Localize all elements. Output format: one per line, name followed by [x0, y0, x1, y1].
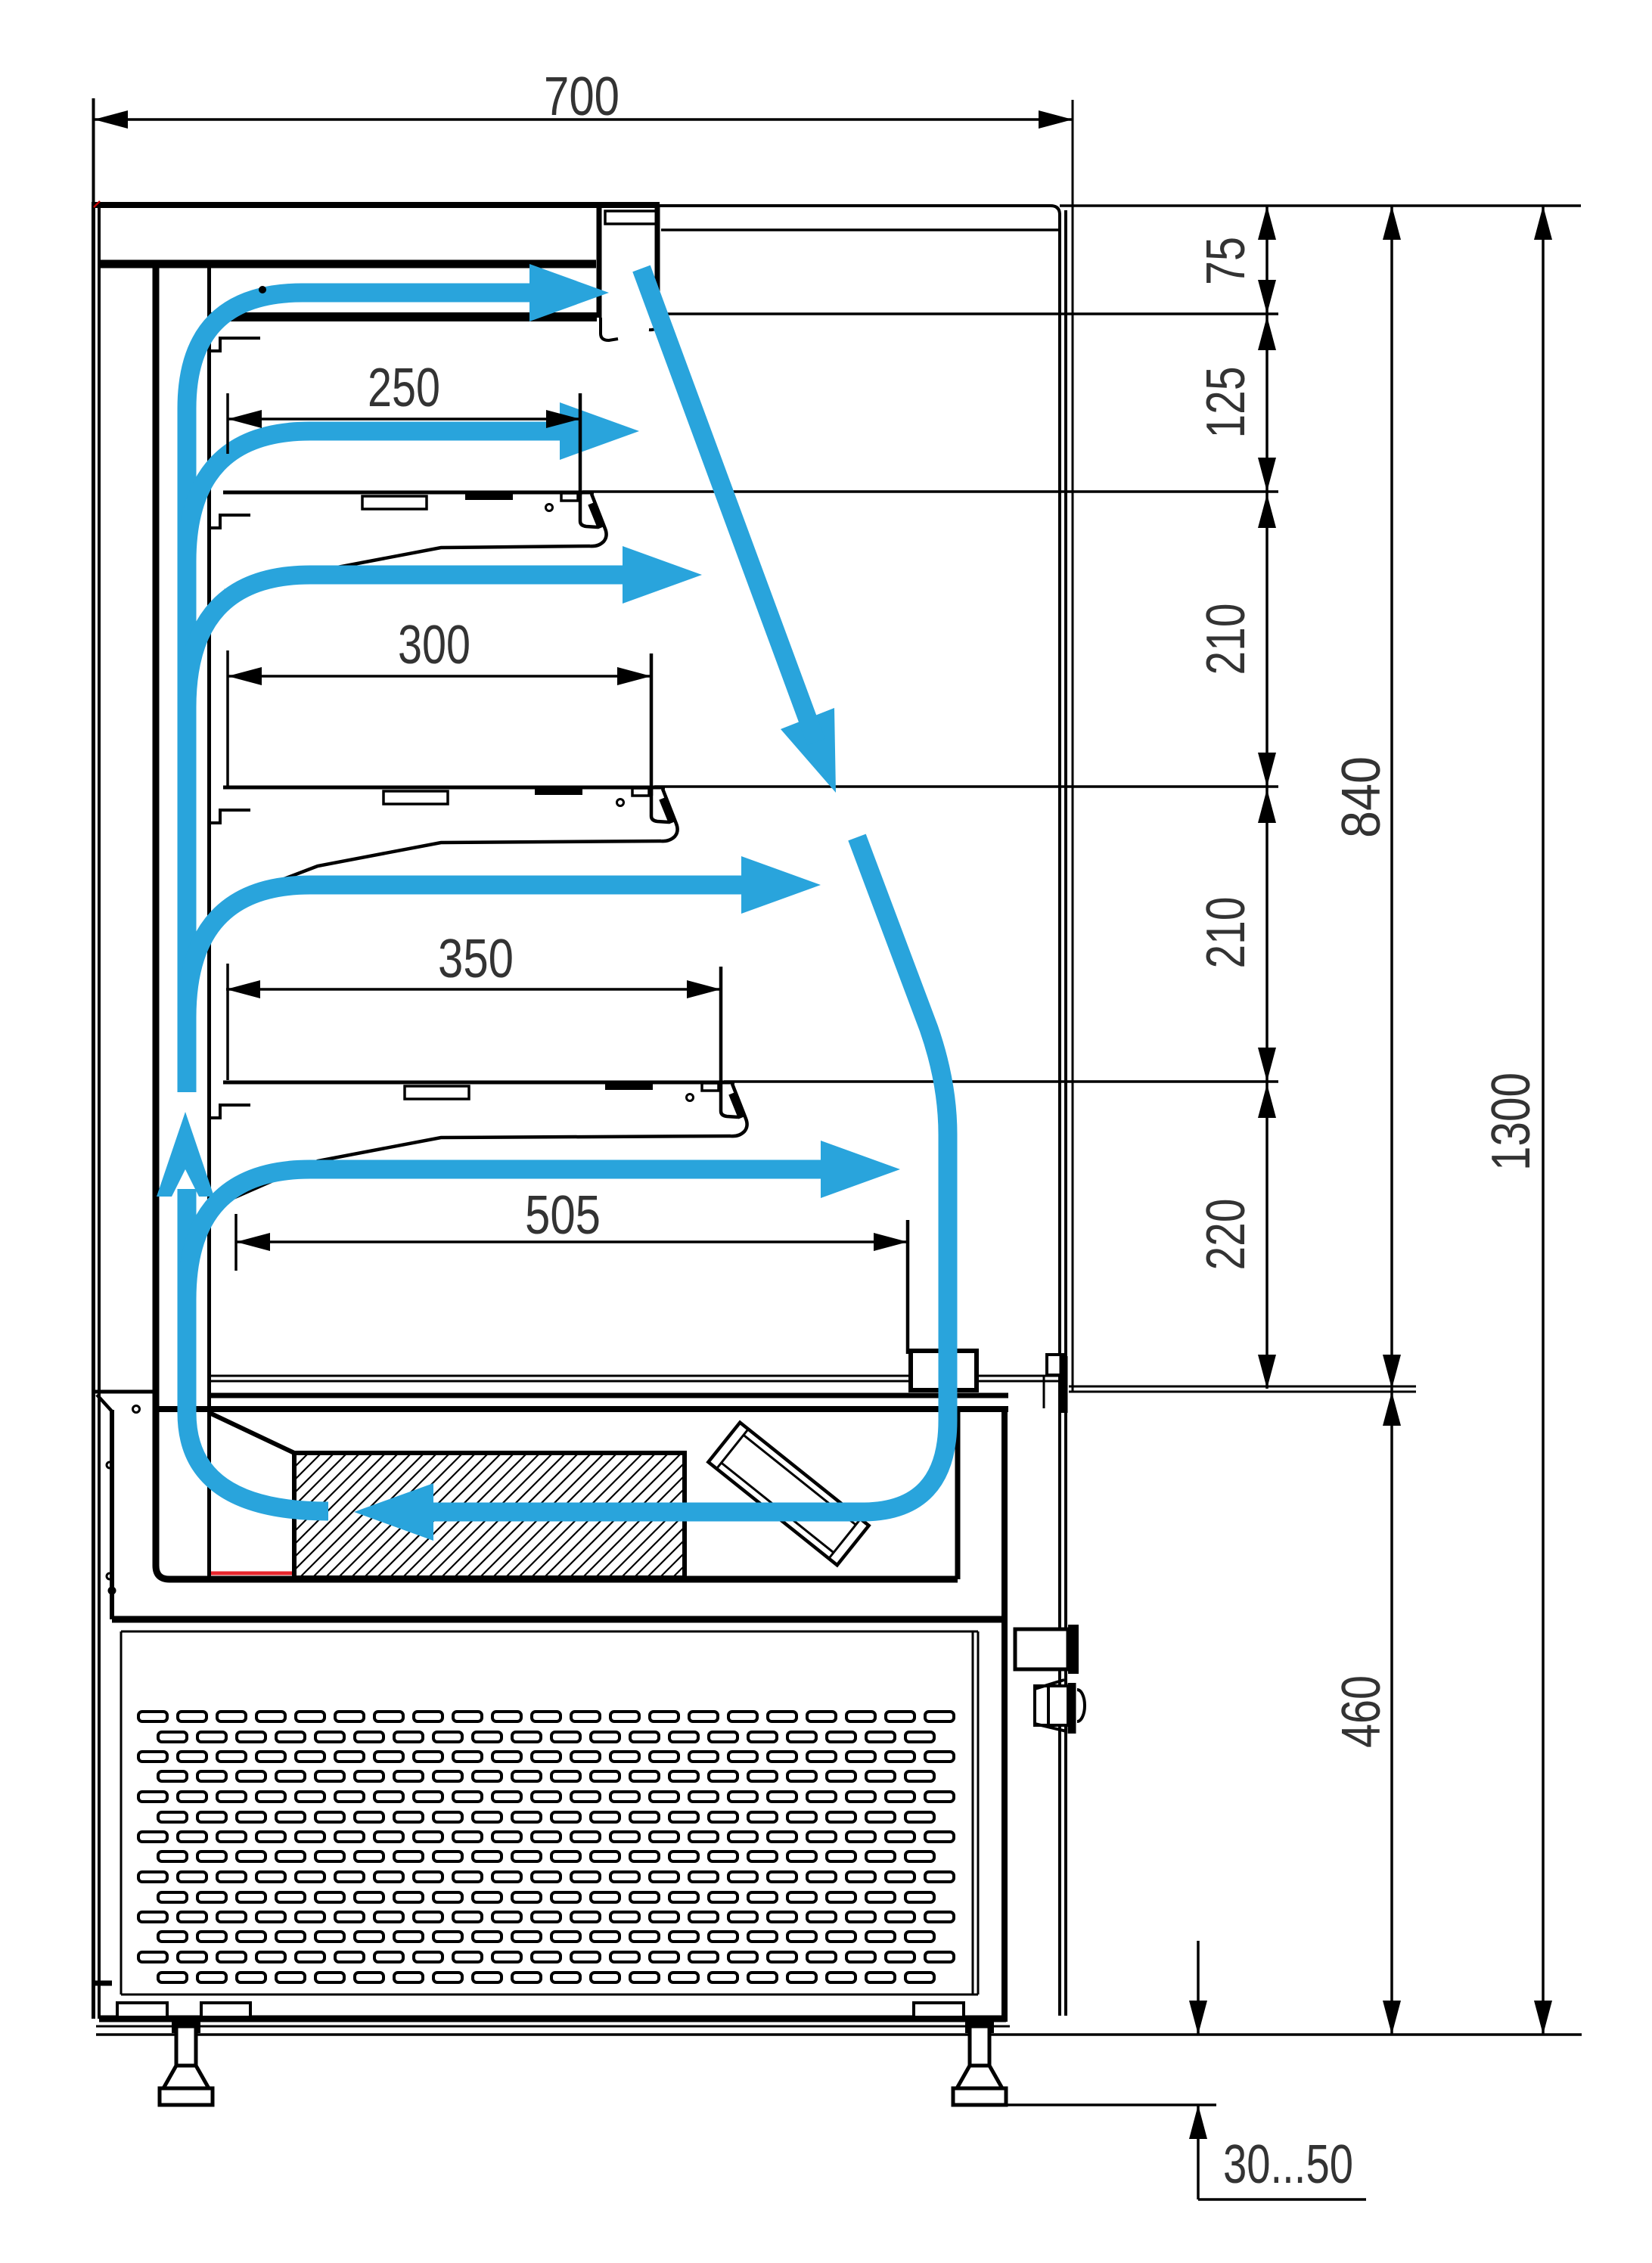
svg-text:700: 700: [544, 67, 619, 127]
svg-text:220: 220: [1196, 1199, 1256, 1271]
svg-text:75: 75: [1196, 237, 1256, 285]
svg-text:30...50: 30...50: [1223, 2134, 1353, 2195]
svg-text:300: 300: [398, 615, 470, 675]
svg-text:250: 250: [368, 358, 440, 418]
svg-text:1300: 1300: [1481, 1073, 1542, 1171]
svg-text:210: 210: [1196, 897, 1256, 969]
svg-text:350: 350: [438, 929, 514, 989]
svg-text:840: 840: [1331, 756, 1392, 838]
svg-text:210: 210: [1196, 604, 1256, 675]
svg-text:125: 125: [1196, 367, 1256, 439]
svg-text:460: 460: [1331, 1675, 1392, 1748]
svg-text:505: 505: [525, 1185, 601, 1246]
